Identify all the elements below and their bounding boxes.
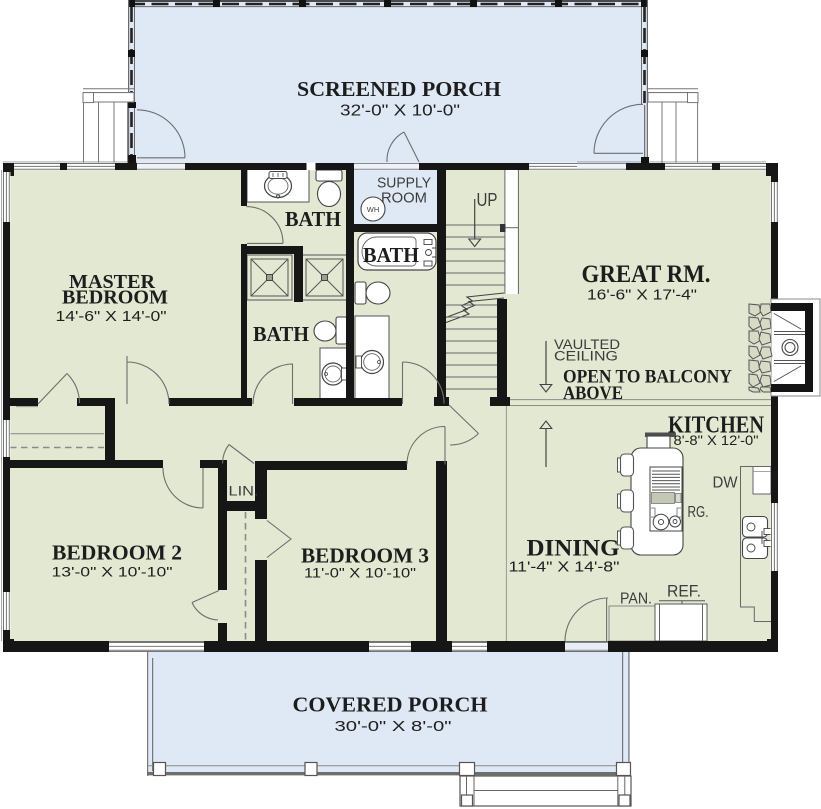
svg-text:LIN.: LIN. [229,483,259,499]
svg-text:DW: DW [713,475,739,492]
svg-text:GREAT RM.: GREAT RM. [582,261,711,288]
svg-text:CEILING: CEILING [554,349,618,364]
svg-text:11'-4" X 14'-8": 11'-4" X 14'-8" [509,560,620,576]
svg-text:BEDROOM: BEDROOM [62,287,168,309]
svg-text:BEDROOM 2: BEDROOM 2 [52,541,182,565]
svg-text:BATH: BATH [253,322,309,346]
svg-text:UP: UP [477,190,498,210]
svg-text:COVERED PORCH: COVERED PORCH [293,693,488,717]
svg-text:30'-0" X 8'-0": 30'-0" X 8'-0" [335,718,452,735]
svg-text:DINING: DINING [527,536,620,561]
svg-text:ROOM: ROOM [381,190,427,207]
svg-text:32'-0" X 10'-0": 32'-0" X 10'-0" [340,103,460,120]
svg-text:8'-8" X 12'-0": 8'-8" X 12'-0" [674,432,759,448]
svg-text:13'-0" X 10'-10": 13'-0" X 10'-10" [52,564,173,580]
svg-text:14'-6" X 14'-0": 14'-6" X 14'-0" [56,309,167,325]
svg-text:PAN.: PAN. [620,591,652,608]
svg-text:SCREENED PORCH: SCREENED PORCH [297,77,501,101]
svg-text:BATH: BATH [363,243,419,267]
svg-text:RG.: RG. [688,504,709,521]
svg-text:16'-6" X 17'-4": 16'-6" X 17'-4" [587,288,697,304]
svg-text:BATH: BATH [285,207,341,231]
svg-text:11'-0" X 10'-10": 11'-0" X 10'-10" [304,565,416,581]
svg-text:ABOVE: ABOVE [563,383,623,404]
svg-text:WH: WH [367,205,380,214]
svg-text:REF.: REF. [667,583,701,601]
